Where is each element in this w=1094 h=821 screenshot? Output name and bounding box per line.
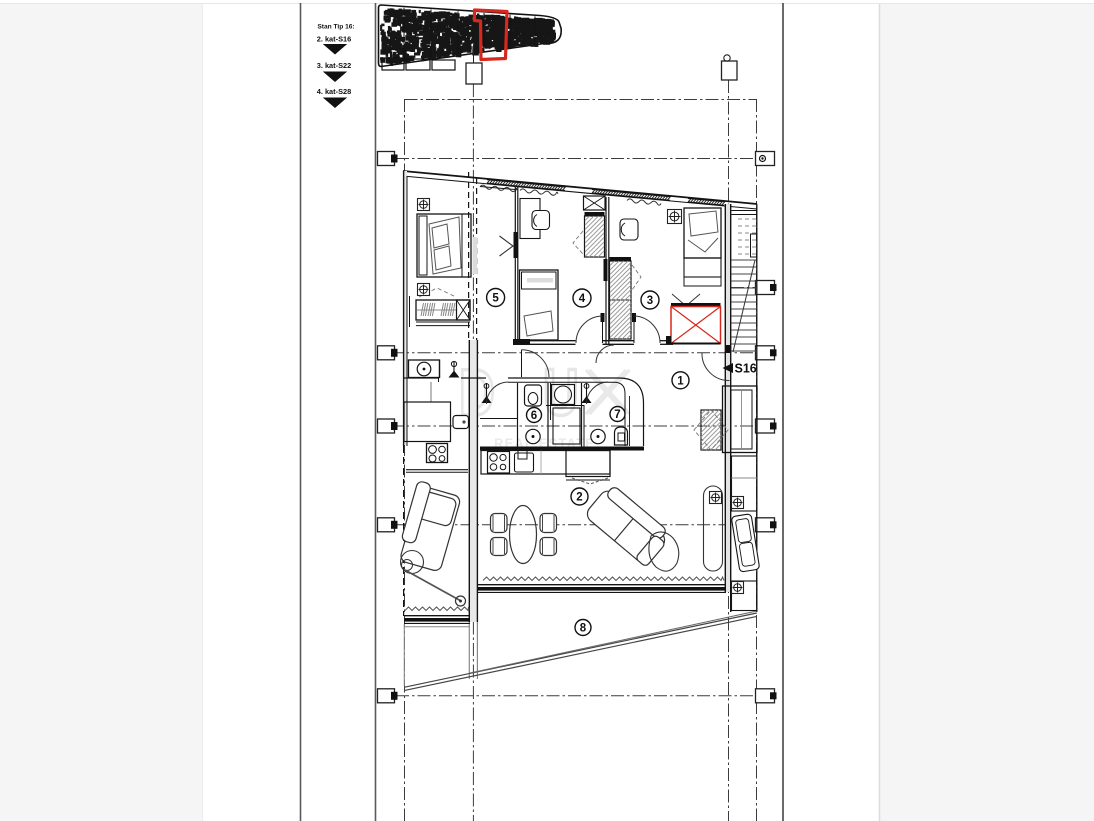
svg-text:Stan Tip 16:: Stan Tip 16: [317, 24, 354, 31]
svg-text:4: 4 [579, 293, 586, 305]
svg-text:7: 7 [614, 409, 620, 421]
svg-text:2: 2 [576, 492, 582, 504]
svg-text:6: 6 [531, 410, 537, 422]
svg-text:3. kat-S22: 3. kat-S22 [317, 61, 352, 70]
svg-text:4. kat-S28: 4. kat-S28 [317, 87, 352, 96]
svg-text:1: 1 [677, 375, 684, 387]
svg-text:5: 5 [492, 293, 499, 305]
svg-text:2. kat-S16: 2. kat-S16 [317, 35, 352, 44]
svg-text:3: 3 [647, 295, 653, 307]
svg-text:8: 8 [580, 623, 587, 635]
svg-text:S16: S16 [735, 362, 757, 376]
